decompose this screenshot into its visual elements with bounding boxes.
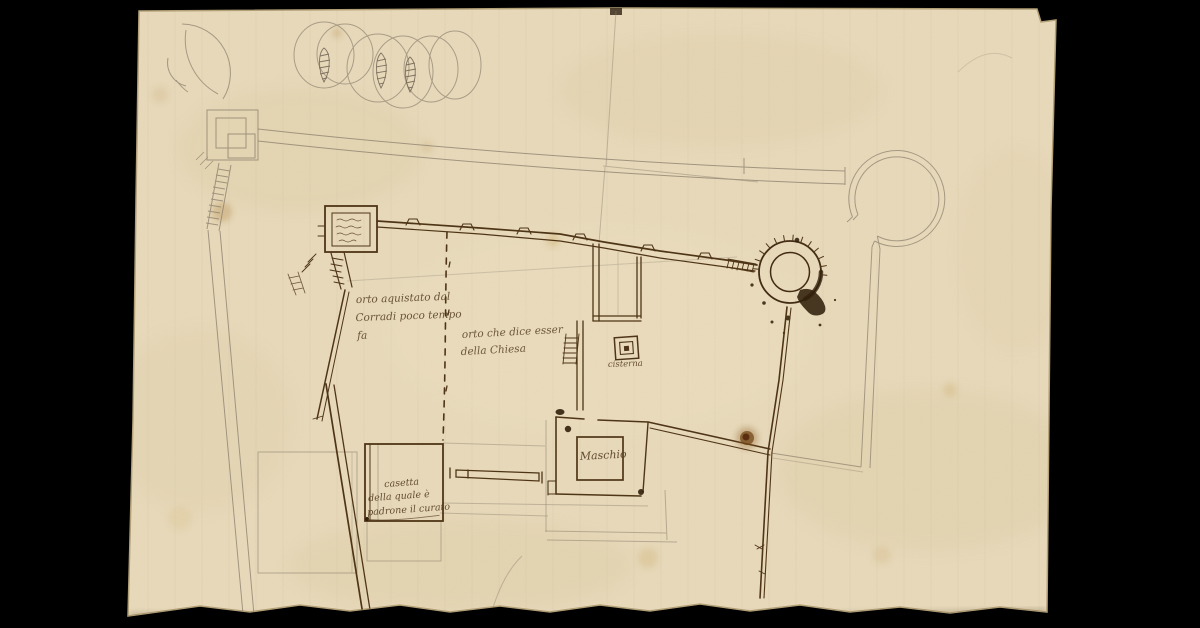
manuscript-plan-svg: orto aquistato dal Corradi poco tempo fa… <box>0 0 1200 628</box>
brown-stain <box>736 427 758 449</box>
cisterna-label: cisterna <box>608 359 643 370</box>
orto-left-line3: fa <box>356 330 368 342</box>
maschio-label: Maschio <box>578 448 627 464</box>
scanned-manuscript-view: orto aquistato dal Corradi poco tempo fa… <box>0 0 1200 628</box>
paper-texture <box>110 0 1080 628</box>
